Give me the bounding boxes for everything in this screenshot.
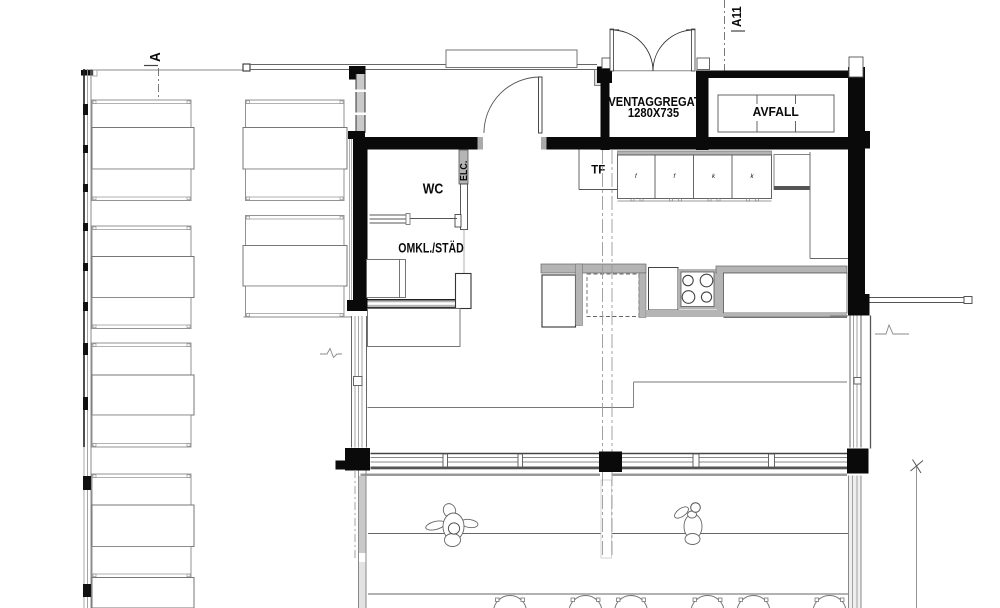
svg-text:ELC.: ELC. (458, 160, 470, 181)
svg-text:AVFALL: AVFALL (753, 105, 799, 119)
svg-text:A: A (147, 52, 164, 62)
svg-text:1280X735: 1280X735 (628, 105, 680, 120)
svg-text:TF: TF (591, 165, 605, 177)
svg-text:A11: A11 (729, 6, 744, 27)
svg-text:WC: WC (423, 181, 444, 197)
svg-text:OMKL./STÄD: OMKL./STÄD (398, 239, 464, 256)
